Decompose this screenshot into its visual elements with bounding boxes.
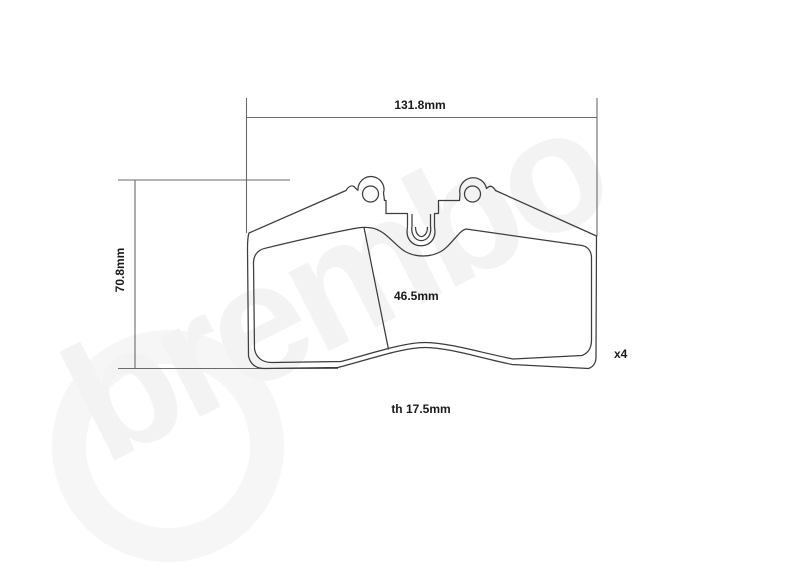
dimension-lines <box>118 98 597 369</box>
height-dimension-label: 70.8mm <box>113 235 127 305</box>
left-ear-hole <box>363 186 379 202</box>
backplate-outline <box>248 176 597 368</box>
quantity-label: x4 <box>614 347 627 361</box>
drawing-canvas: brembo 131.8mm 70. <box>0 0 800 566</box>
width-dimension-label: 131.8mm <box>320 98 520 112</box>
friction-height-dimension-line <box>364 228 389 350</box>
right-ear-hole <box>465 186 481 202</box>
friction-height-dimension-label: 46.5mm <box>394 289 439 303</box>
center-slot-inner-u <box>416 227 428 237</box>
thickness-dimension-label: th 17.5mm <box>321 402 521 416</box>
brake-pad-outline-group <box>248 176 597 368</box>
